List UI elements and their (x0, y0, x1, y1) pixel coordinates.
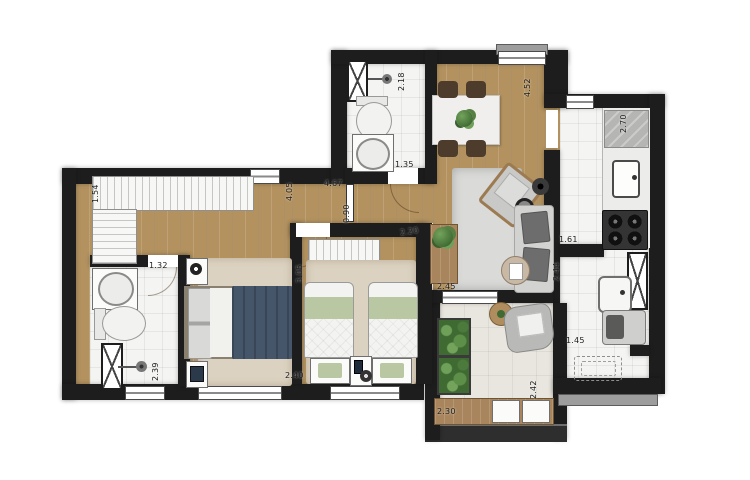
wall (544, 94, 665, 108)
dimension-label: 1.32 (149, 261, 168, 270)
seat-cushion (522, 400, 550, 423)
door-opening (296, 223, 330, 237)
single-bed (304, 282, 354, 358)
nightstand-decor (190, 366, 204, 382)
optional-table-top (581, 361, 616, 376)
wall (630, 345, 649, 356)
bathroom-sink (356, 138, 390, 170)
laundry-tank (602, 310, 646, 345)
balcony-planter (437, 356, 471, 395)
bathroom-sink (98, 272, 134, 306)
desk-chair (360, 370, 372, 382)
dimension-label: 2.40 (285, 371, 304, 380)
dimension-label: 1.35 (395, 160, 414, 169)
balcony-planter (437, 318, 471, 357)
shower-head-icon (382, 74, 392, 84)
table-plant (456, 110, 473, 127)
balcony-sliding-door (442, 291, 498, 304)
dimension-label: 1.54 (91, 184, 100, 203)
dimension-label: 4.67 (324, 179, 343, 188)
sofa-cushion (520, 211, 550, 245)
armchair-cushion (516, 312, 545, 337)
dimension-label: 2.39 (151, 362, 160, 381)
seat-cushion (492, 400, 520, 423)
kitchen-sink (612, 160, 640, 198)
washer-door (620, 290, 625, 295)
bed-pillows (188, 288, 212, 359)
bench-cushion (380, 363, 404, 378)
dimension-label: 1.61 (559, 235, 578, 244)
dimension-label: 3.05 (295, 264, 304, 283)
bench-cushion (318, 363, 342, 378)
study-desk (350, 356, 372, 386)
dining-chair (466, 140, 486, 157)
stove (602, 210, 648, 250)
dining-chair (438, 140, 458, 157)
bed-quilt (369, 319, 417, 357)
single-bed (368, 282, 418, 358)
window-sill (558, 394, 658, 406)
passage-opening (546, 110, 558, 148)
tank-basin (606, 315, 624, 339)
bed-quilt (305, 319, 353, 357)
dimension-label: 4.05 (285, 182, 294, 201)
dimension-label: 2.44 (552, 262, 561, 281)
bed-blanket (305, 297, 353, 319)
potted-plant (433, 227, 453, 247)
bed-duvet (232, 286, 292, 359)
shower-head-icon (136, 361, 147, 372)
bed-bench (372, 358, 412, 384)
wardrobe-closet (92, 209, 137, 264)
washing-machine (598, 276, 632, 313)
floor-plan-canvas: 1.54 4.05 4.67 0.90 2.18 1.35 4.52 2.70 … (0, 0, 750, 480)
faucet-icon (632, 175, 637, 180)
coffee-table (501, 256, 530, 285)
window (566, 95, 594, 109)
bed-blanket (369, 297, 417, 319)
floor-lamp (532, 178, 549, 195)
dimension-label: 4.52 (523, 78, 532, 97)
wardrobe-closet (308, 239, 380, 262)
dimension-label: 0.90 (342, 204, 351, 223)
window (498, 51, 546, 65)
dimension-label: 2.30 (437, 407, 456, 416)
bedside-lamp (190, 263, 202, 275)
dimension-label: 2.18 (397, 72, 406, 91)
dimension-label: 2.42 (529, 380, 538, 399)
dimension-label: 2.70 (619, 114, 628, 133)
window (125, 386, 165, 400)
wall (649, 94, 665, 394)
dimension-label: 2.45 (437, 282, 456, 291)
dimension-label: 1.45 (566, 336, 585, 345)
window (330, 386, 400, 400)
optional-table (574, 356, 622, 381)
coffee-table-book (509, 263, 523, 280)
wall (553, 303, 567, 440)
wall (425, 424, 567, 442)
window (250, 169, 280, 184)
dining-chair (438, 81, 458, 98)
wardrobe-closet (92, 176, 254, 211)
dining-chair (466, 81, 486, 98)
bed-sheet (210, 288, 233, 357)
bed-bench (310, 358, 350, 384)
wall (331, 50, 347, 184)
balcony-armchair (502, 302, 556, 354)
wall (62, 168, 76, 400)
window (198, 386, 282, 400)
toilet-bowl (102, 306, 146, 341)
wall (560, 244, 604, 257)
